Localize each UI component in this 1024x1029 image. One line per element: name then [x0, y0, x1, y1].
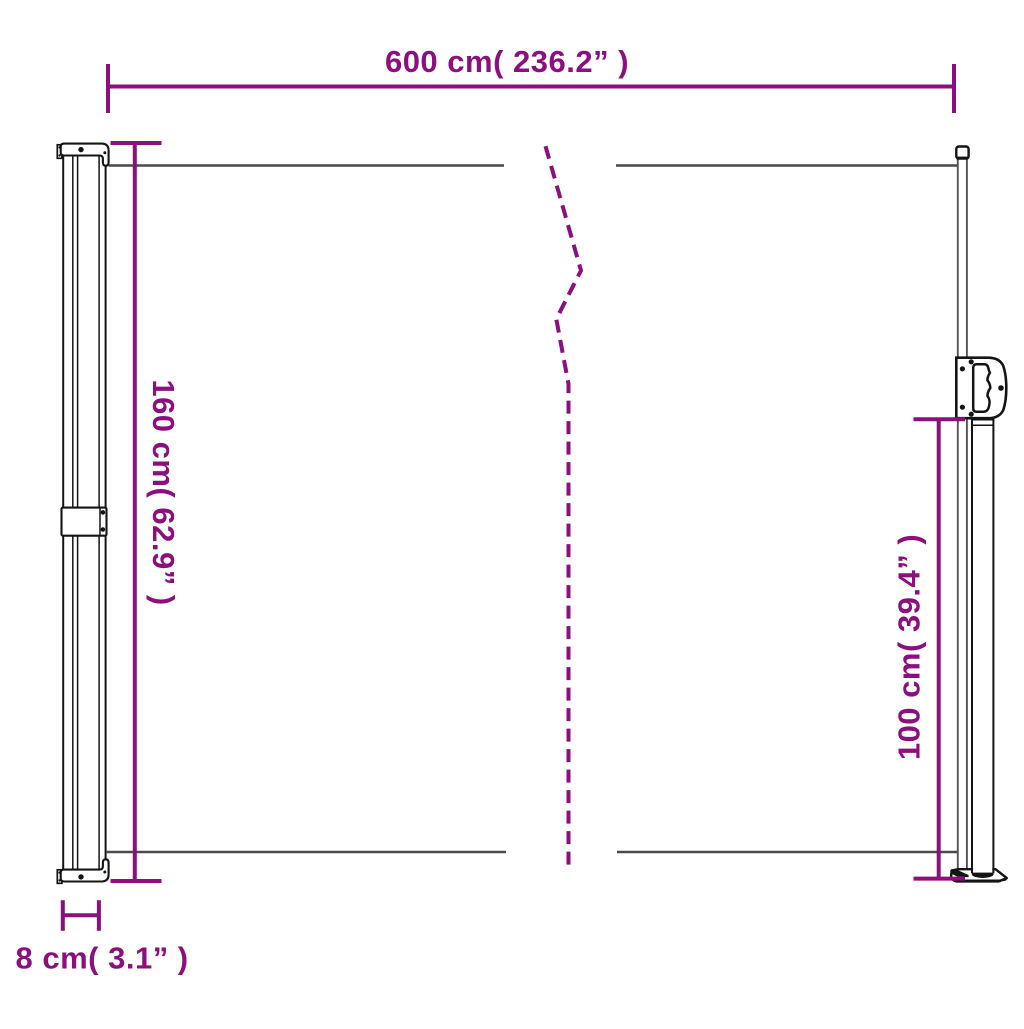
- svg-text:160 cm( 62.9” ): 160 cm( 62.9” ): [146, 379, 181, 605]
- svg-text:600 cm( 236.2” ): 600 cm( 236.2” ): [385, 44, 629, 79]
- svg-text:8 cm( 3.1” ): 8 cm( 3.1” ): [16, 940, 189, 975]
- svg-text:100 cm( 39.4” ): 100 cm( 39.4” ): [892, 534, 927, 760]
